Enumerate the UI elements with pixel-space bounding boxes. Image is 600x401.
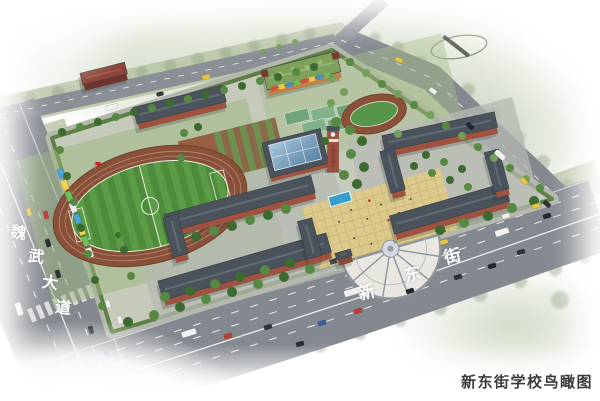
tree xyxy=(58,128,66,136)
tree xyxy=(359,162,369,172)
tree xyxy=(245,215,255,225)
clock-tower xyxy=(325,126,341,173)
west-road-char: 道 xyxy=(54,300,72,318)
tree xyxy=(276,44,282,50)
south-road-char: 新 xyxy=(356,282,377,303)
tree xyxy=(394,90,402,98)
tree xyxy=(474,143,482,151)
tree xyxy=(352,179,362,189)
tree xyxy=(426,111,434,119)
tree xyxy=(227,287,237,297)
tree xyxy=(148,104,156,112)
tree xyxy=(220,86,228,94)
tree xyxy=(120,246,128,254)
tree xyxy=(260,49,266,55)
tree xyxy=(446,176,454,184)
tree xyxy=(328,74,336,82)
tree xyxy=(327,99,335,107)
tree xyxy=(442,122,450,130)
tree xyxy=(274,73,282,81)
tree xyxy=(279,272,289,282)
tree xyxy=(321,137,329,145)
tree xyxy=(56,146,64,154)
tree xyxy=(536,184,544,192)
tree xyxy=(345,125,355,135)
tree xyxy=(428,169,436,177)
sketch-tree xyxy=(304,27,316,39)
tree xyxy=(458,132,466,140)
south-road-char: 东 xyxy=(402,264,423,285)
tree xyxy=(98,302,106,310)
tree xyxy=(310,63,318,71)
tree xyxy=(76,123,84,131)
tree xyxy=(84,250,92,258)
tree xyxy=(285,258,295,268)
tree xyxy=(185,286,195,296)
tree xyxy=(435,225,445,235)
tree xyxy=(507,203,517,213)
image-caption: 新东街学校鸟瞰图 xyxy=(461,371,593,392)
tree xyxy=(292,68,300,76)
tree xyxy=(339,170,349,180)
tree xyxy=(184,95,192,103)
west-road-char: 大 xyxy=(41,275,59,293)
tree xyxy=(362,69,370,77)
tree xyxy=(209,226,219,236)
tree xyxy=(127,272,135,280)
tree xyxy=(177,154,185,162)
tree xyxy=(238,82,246,90)
tree xyxy=(201,294,211,304)
tree xyxy=(180,129,188,137)
scene-canvas xyxy=(0,0,600,401)
tree xyxy=(331,117,341,127)
sketch-tree xyxy=(551,291,569,309)
tree xyxy=(77,224,85,232)
tree xyxy=(160,292,170,302)
tree xyxy=(227,221,237,231)
tree xyxy=(422,151,430,159)
tree xyxy=(210,279,220,289)
tree xyxy=(63,172,71,180)
tree xyxy=(263,210,273,220)
tree xyxy=(115,232,121,238)
tree xyxy=(340,88,348,96)
tree xyxy=(256,77,264,85)
tree xyxy=(130,108,138,116)
tree xyxy=(235,272,245,282)
tree xyxy=(253,279,263,289)
tree xyxy=(464,183,472,191)
tree xyxy=(260,265,270,275)
sketch-tree xyxy=(248,40,260,52)
tree xyxy=(410,162,418,170)
tree xyxy=(458,165,466,173)
tree xyxy=(459,218,469,228)
tree xyxy=(346,58,354,66)
tree xyxy=(292,39,298,45)
tree xyxy=(394,130,402,138)
tree xyxy=(202,91,210,99)
west-road-char: 魏 xyxy=(9,225,27,243)
south-road-char: 街 xyxy=(442,246,463,267)
tree xyxy=(166,99,174,107)
tree xyxy=(123,317,133,327)
tree xyxy=(70,198,78,206)
tree xyxy=(94,118,102,126)
tree xyxy=(112,113,120,121)
tree xyxy=(506,164,514,172)
tree xyxy=(175,302,185,312)
tree xyxy=(378,80,386,88)
tree xyxy=(91,276,99,284)
tree xyxy=(191,232,201,242)
tree xyxy=(194,123,202,131)
tree xyxy=(410,101,418,109)
sketch-tree xyxy=(276,34,288,46)
tree xyxy=(305,264,315,274)
car xyxy=(106,103,119,111)
tree xyxy=(357,136,367,146)
tree xyxy=(440,158,448,166)
west-road-char: 武 xyxy=(27,249,45,267)
tree xyxy=(483,211,493,221)
tree xyxy=(346,149,356,159)
school-birdseye-rendering: 魏 武 大 道 新 东 街 新东街学校鸟瞰图 xyxy=(0,0,600,401)
tree xyxy=(149,310,159,320)
tree xyxy=(281,204,291,214)
